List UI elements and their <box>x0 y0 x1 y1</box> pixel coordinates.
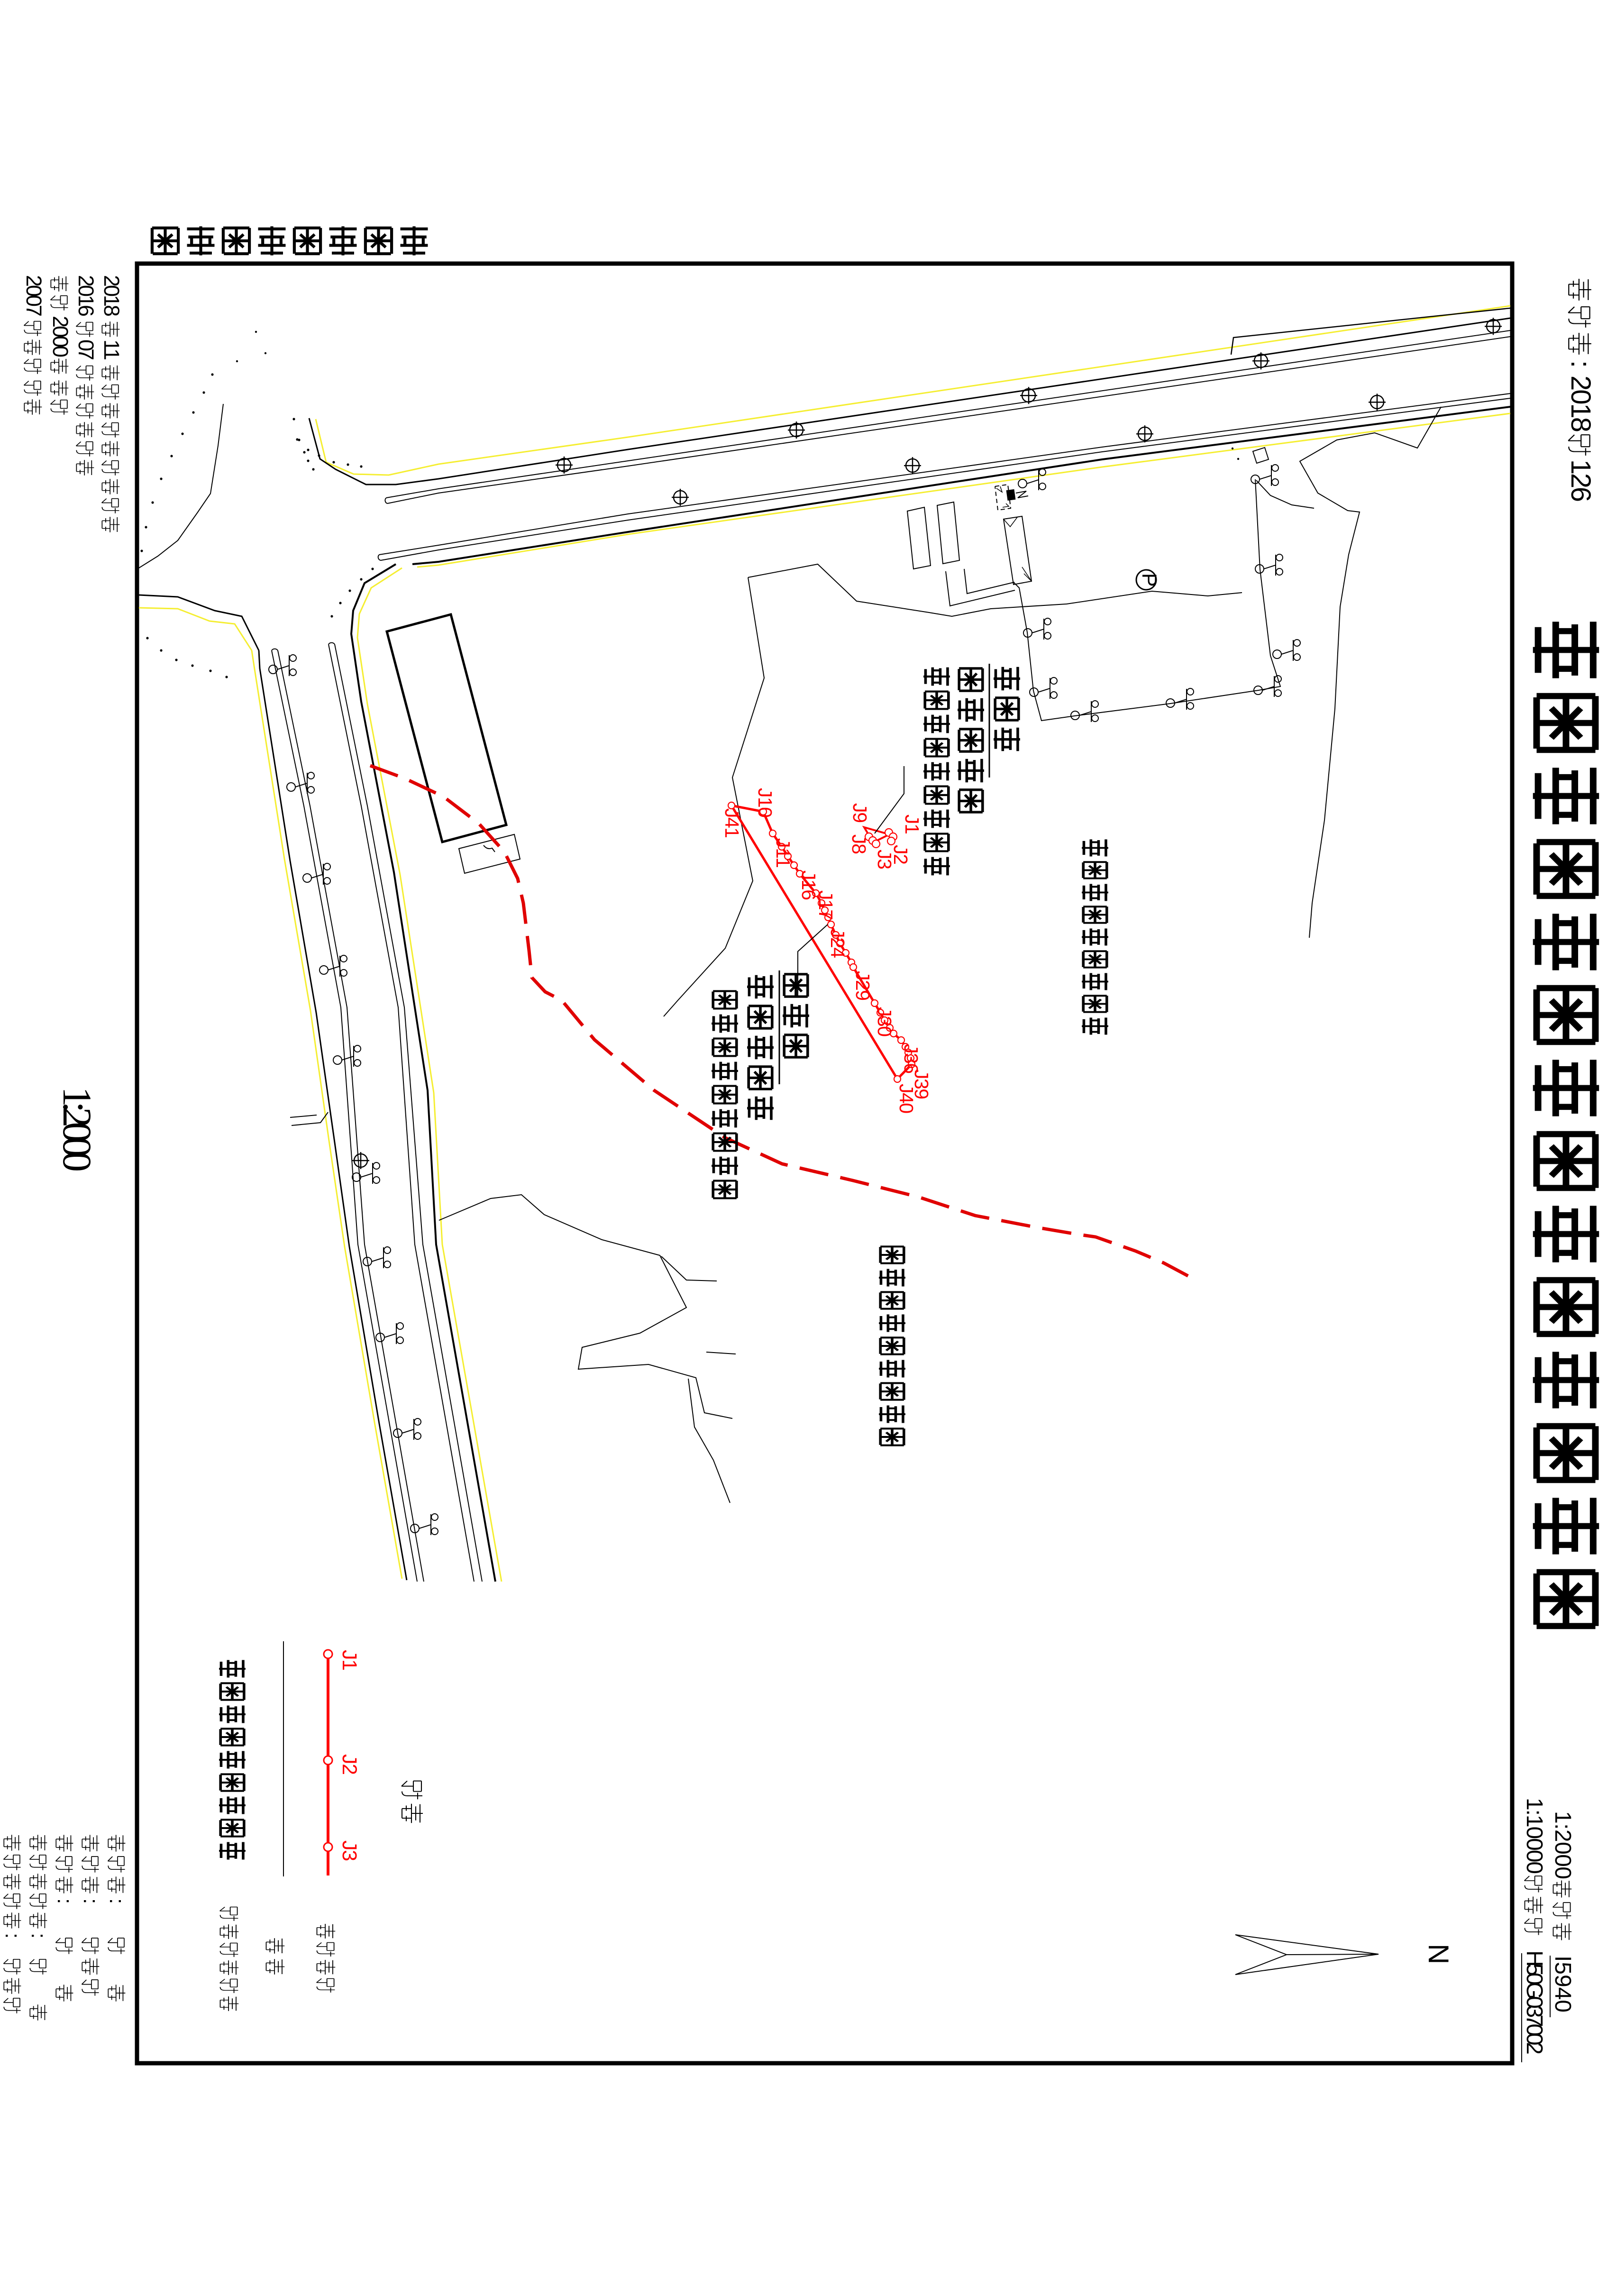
svg-text:J41: J41 <box>721 808 743 838</box>
svg-text:J11: J11 <box>772 838 794 868</box>
svg-text:J3: J3 <box>338 1840 361 1861</box>
svg-text:J9: J9 <box>849 803 871 823</box>
svg-text:J10: J10 <box>754 788 776 818</box>
svg-text:J30: J30 <box>874 1007 895 1037</box>
svg-text:J24: J24 <box>827 928 849 958</box>
svg-text:J17: J17 <box>815 890 837 920</box>
svg-text:J1: J1 <box>901 814 923 834</box>
svg-text:P: P <box>1138 573 1160 587</box>
svg-text::: : <box>105 1898 128 1904</box>
svg-text:1:2000: 1:2000 <box>1550 1811 1575 1879</box>
svg-text:2007: 2007 <box>22 275 46 317</box>
svg-text::: : <box>1565 360 1596 368</box>
svg-text:1:10000: 1:10000 <box>1522 1798 1547 1874</box>
svg-text:07: 07 <box>74 339 98 360</box>
svg-text:2016: 2016 <box>74 275 98 317</box>
svg-text:11: 11 <box>100 339 124 360</box>
svg-text:2000: 2000 <box>48 316 73 357</box>
svg-text:2018: 2018 <box>100 275 124 317</box>
svg-text:J40: J40 <box>895 1084 917 1114</box>
svg-text:1:2000: 1:2000 <box>55 1087 100 1172</box>
svg-text::: : <box>79 1898 102 1904</box>
svg-text:H50G037002: H50G037002 <box>1522 1950 1547 2055</box>
svg-text:N: N <box>1423 1944 1454 1964</box>
svg-text:J29: J29 <box>852 971 874 1001</box>
svg-text::: : <box>53 1898 76 1904</box>
svg-text:J8: J8 <box>848 834 870 854</box>
svg-text:2018: 2018 <box>1565 375 1596 432</box>
svg-text:J3: J3 <box>874 850 895 869</box>
svg-text:126: 126 <box>1565 459 1596 502</box>
svg-text::: : <box>1 1933 24 1939</box>
svg-text:I5940: I5940 <box>1550 1956 1575 2012</box>
svg-text:J1: J1 <box>338 1650 361 1671</box>
svg-text:J2: J2 <box>338 1754 361 1775</box>
svg-text::: : <box>27 1933 50 1939</box>
